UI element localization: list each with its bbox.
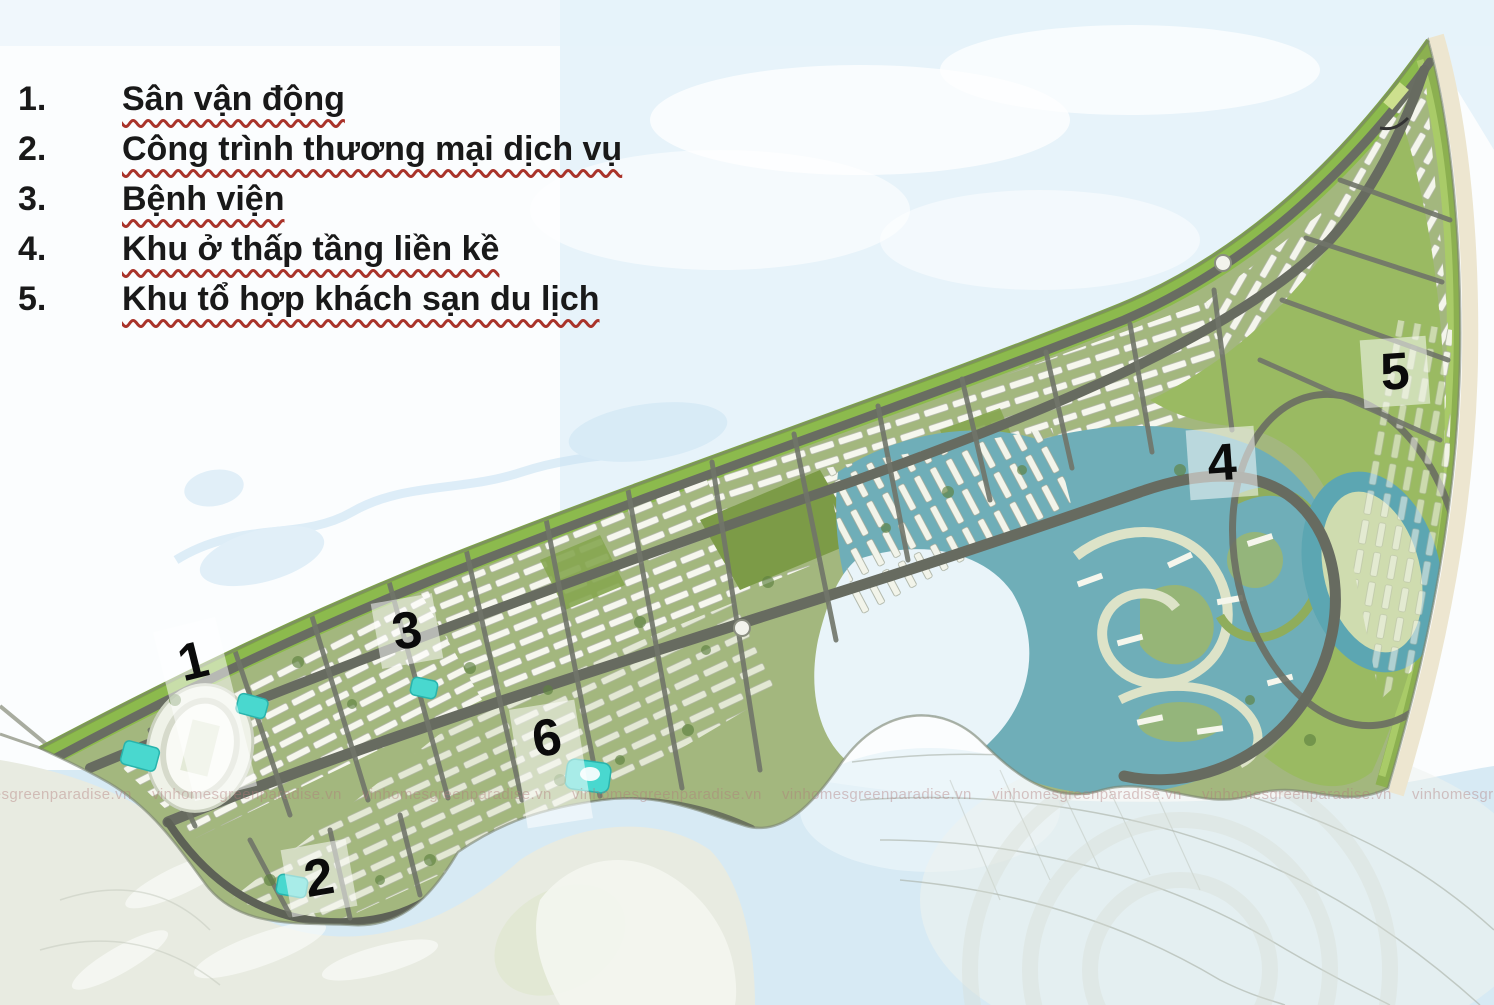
- marker-number: 2: [300, 850, 338, 906]
- marker-number: 6: [529, 710, 575, 825]
- watermark-text: vinhomesgreenparadise.vn: [152, 786, 342, 803]
- legend-item-label: Khu tổ hợp khách sạn du lịch: [122, 280, 600, 319]
- roundabout: [1215, 255, 1231, 271]
- legend: 1. Sân vận động 2. Công trình thương mại…: [18, 80, 622, 330]
- legend-item-label: Khu ở thấp tầng liền kề: [122, 230, 499, 269]
- map-marker-2: 2: [281, 839, 358, 917]
- legend-item-label: Công trình thương mại dịch vụ: [122, 130, 622, 169]
- legend-item-number: 5.: [18, 280, 122, 319]
- legend-item-number: 1.: [18, 80, 122, 119]
- map-marker-3: 3: [371, 593, 444, 669]
- map-marker-5: 5: [1360, 336, 1431, 408]
- map-marker-4: 4: [1186, 426, 1259, 501]
- legend-item: 2. Công trình thương mại dịch vụ: [18, 130, 622, 180]
- roundabout: [734, 620, 750, 636]
- legend-item-label: Sân vận động: [122, 80, 345, 119]
- watermark-text: vinhomesgreenparadise.vn: [0, 786, 132, 803]
- marker-number: 3: [388, 603, 426, 659]
- legend-item: 1. Sân vận động: [18, 80, 622, 130]
- watermark-text: vinhomesgreenparadise.vn: [992, 786, 1182, 803]
- legend-item-label: Bệnh viện: [122, 180, 284, 219]
- legend-item-number: 3.: [18, 180, 122, 219]
- master-plan-figure: 1 2 3 4 5 6 vinhomesgreenparadise.vn vin…: [0, 0, 1494, 1005]
- legend-item: 4. Khu ở thấp tầng liền kề: [18, 230, 622, 280]
- watermark-text: vinhomesgreenparadise.vn: [1412, 786, 1494, 803]
- marker-number: 4: [1206, 436, 1238, 490]
- legend-item: 5. Khu tổ hợp khách sạn du lịch: [18, 280, 622, 330]
- legend-item: 3. Bệnh viện: [18, 180, 622, 230]
- watermark-text: vinhomesgreenparadise.vn: [362, 786, 552, 803]
- legend-item-number: 2.: [18, 130, 122, 169]
- watermark-text: vinhomesgreenparadise.vn: [782, 786, 972, 803]
- legend-item-number: 4.: [18, 230, 122, 269]
- marker-number: 5: [1379, 345, 1411, 399]
- watermark-text: vinhomesgreenparadise.vn: [1202, 786, 1392, 803]
- watermark-text: vinhomesgreenparadise.vn: [572, 786, 762, 803]
